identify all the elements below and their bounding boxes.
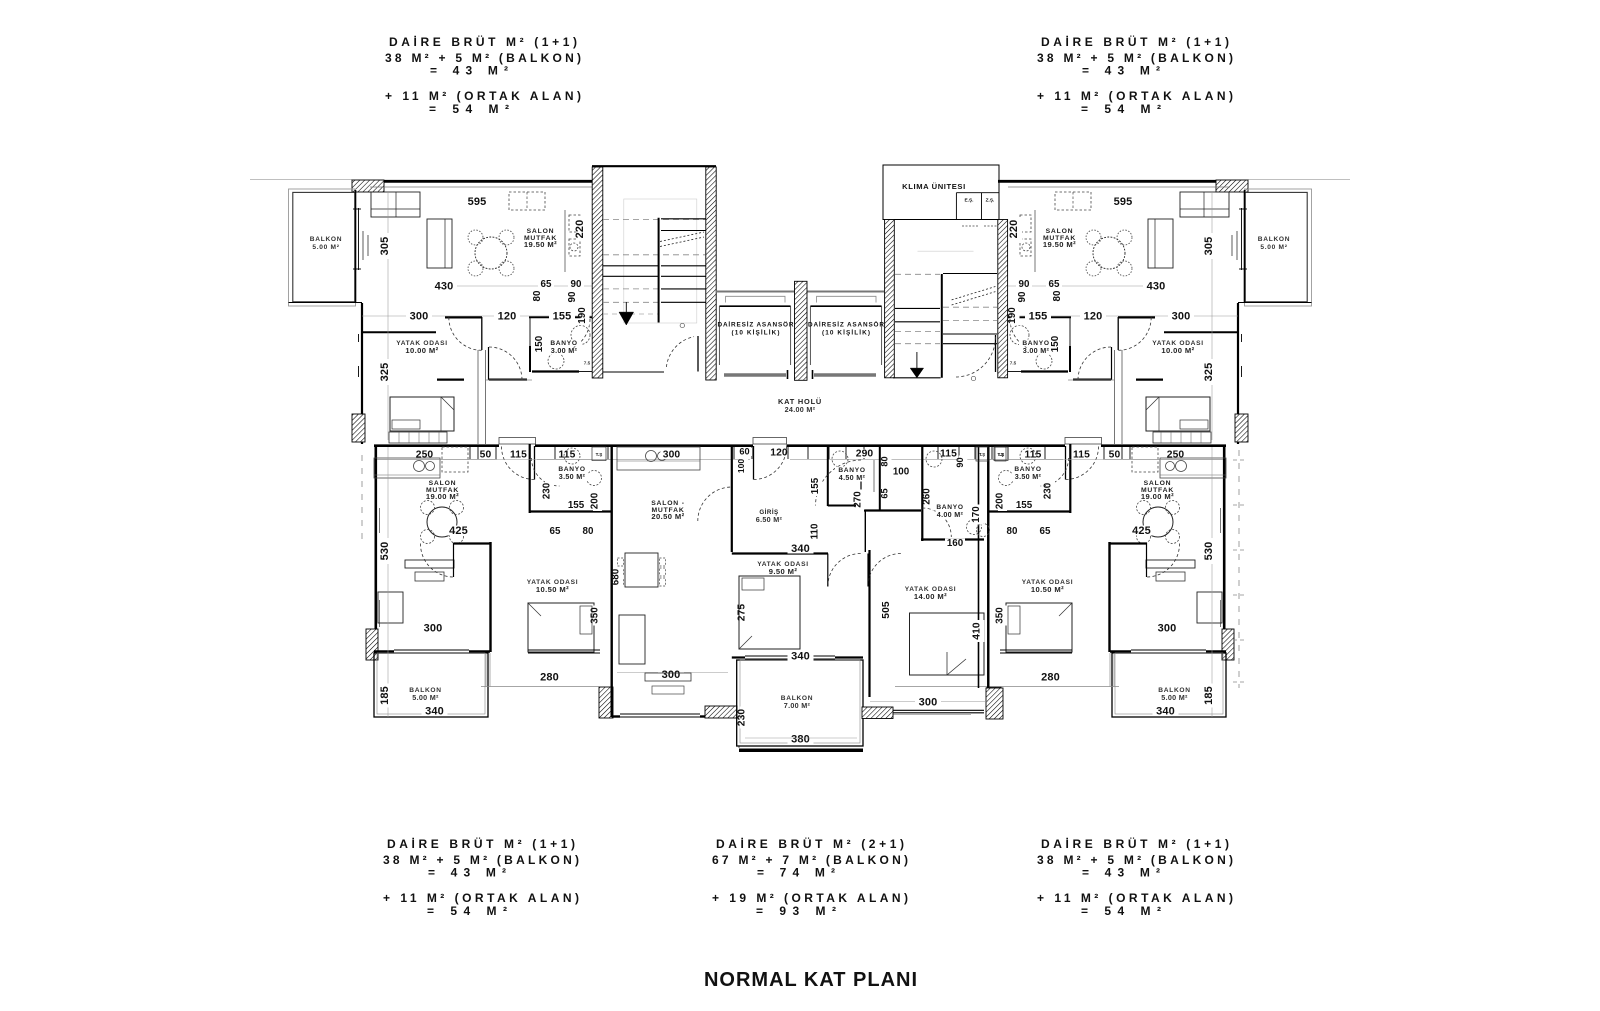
svg-text:110: 110 bbox=[810, 523, 821, 539]
svg-text:190: 190 bbox=[577, 307, 588, 324]
svg-text:425: 425 bbox=[449, 525, 468, 537]
svg-text:280: 280 bbox=[540, 672, 559, 684]
svg-text:505: 505 bbox=[881, 601, 892, 619]
svg-text:9.50 M²: 9.50 M² bbox=[769, 567, 798, 576]
svg-text:90: 90 bbox=[571, 279, 582, 290]
svg-text:290: 290 bbox=[856, 449, 874, 460]
svg-text:300: 300 bbox=[662, 669, 681, 681]
svg-text:270: 270 bbox=[853, 491, 864, 508]
svg-text:200: 200 bbox=[995, 492, 1006, 509]
svg-text:5.00 M²: 5.00 M² bbox=[1260, 244, 1287, 251]
svg-text:T.Ş: T.Ş bbox=[596, 452, 603, 457]
svg-text:80: 80 bbox=[879, 456, 889, 466]
svg-text:300: 300 bbox=[919, 697, 938, 709]
svg-text:4.50 M²: 4.50 M² bbox=[839, 473, 866, 482]
svg-text:115: 115 bbox=[1073, 450, 1090, 461]
svg-text:10.50 M²: 10.50 M² bbox=[536, 585, 569, 594]
svg-text:SALON: SALON bbox=[429, 480, 457, 487]
svg-text:340: 340 bbox=[791, 651, 810, 663]
svg-text:150: 150 bbox=[534, 335, 545, 352]
svg-text:SALON: SALON bbox=[1046, 228, 1074, 235]
svg-text:190: 190 bbox=[1007, 307, 1018, 324]
svg-text:170: 170 bbox=[971, 506, 982, 523]
svg-text:230: 230 bbox=[1043, 482, 1054, 499]
svg-text:595: 595 bbox=[1114, 196, 1133, 208]
svg-text:SALON: SALON bbox=[527, 228, 555, 235]
svg-text:SALON: SALON bbox=[1144, 480, 1172, 487]
svg-text:3.50 M²: 3.50 M² bbox=[1015, 472, 1042, 481]
svg-text:DAİRESİZ ASANSÖR: DAİRESİZ ASANSÖR bbox=[718, 319, 794, 328]
svg-text:185: 185 bbox=[379, 686, 391, 705]
svg-text:595: 595 bbox=[468, 196, 487, 208]
svg-text:185: 185 bbox=[1203, 686, 1215, 705]
svg-text:65: 65 bbox=[879, 488, 889, 498]
svg-text:19.00 M²: 19.00 M² bbox=[426, 492, 459, 501]
svg-text:5.00 M²: 5.00 M² bbox=[412, 693, 439, 702]
svg-text:325: 325 bbox=[1203, 363, 1215, 382]
svg-text:90: 90 bbox=[567, 291, 578, 302]
svg-text:Z.Ş.: Z.Ş. bbox=[986, 198, 995, 204]
svg-text:340: 340 bbox=[425, 706, 444, 718]
svg-text:325: 325 bbox=[379, 363, 391, 382]
svg-text:155: 155 bbox=[553, 311, 572, 323]
svg-text:300: 300 bbox=[1172, 311, 1191, 323]
svg-text:120: 120 bbox=[1084, 311, 1103, 323]
svg-text:305: 305 bbox=[1203, 237, 1215, 256]
svg-text:120: 120 bbox=[498, 311, 517, 323]
svg-text:65: 65 bbox=[1040, 526, 1051, 537]
svg-text:115: 115 bbox=[559, 450, 576, 461]
svg-text:340: 340 bbox=[791, 543, 810, 555]
svg-text:65: 65 bbox=[550, 526, 561, 537]
svg-text:6.50 M²: 6.50 M² bbox=[756, 515, 783, 524]
svg-text:10.00 M²: 10.00 M² bbox=[405, 346, 438, 355]
svg-text:60: 60 bbox=[739, 447, 749, 457]
svg-text:115: 115 bbox=[510, 450, 527, 461]
svg-text:80: 80 bbox=[583, 526, 594, 537]
svg-text:300: 300 bbox=[424, 623, 443, 635]
svg-text:300: 300 bbox=[663, 450, 681, 461]
svg-text:100: 100 bbox=[893, 467, 910, 478]
svg-text:DAİRESİZ ASANSÖR: DAİRESİZ ASANSÖR bbox=[808, 319, 884, 328]
svg-text:80: 80 bbox=[1052, 290, 1063, 301]
svg-text:305: 305 bbox=[379, 237, 391, 256]
svg-text:120: 120 bbox=[770, 448, 788, 459]
svg-text:BALKON: BALKON bbox=[310, 236, 342, 243]
svg-text:3.50 M²: 3.50 M² bbox=[559, 472, 586, 481]
svg-text:155: 155 bbox=[1029, 311, 1048, 323]
svg-text:115: 115 bbox=[1025, 450, 1042, 461]
svg-text:20.50 M²: 20.50 M² bbox=[651, 512, 684, 521]
svg-text:425: 425 bbox=[1132, 525, 1151, 537]
svg-text:250: 250 bbox=[416, 450, 434, 461]
svg-text:50: 50 bbox=[1109, 450, 1121, 461]
svg-text:250: 250 bbox=[1167, 450, 1185, 461]
svg-text:260: 260 bbox=[922, 488, 933, 505]
svg-text:100: 100 bbox=[736, 459, 746, 474]
svg-text:430: 430 bbox=[1147, 281, 1166, 293]
svg-text:220: 220 bbox=[1008, 220, 1020, 239]
svg-text:3.00 M²: 3.00 M² bbox=[1023, 346, 1050, 355]
svg-text:10.00 M²: 10.00 M² bbox=[1161, 346, 1194, 355]
svg-text:410: 410 bbox=[972, 622, 983, 640]
svg-text:90: 90 bbox=[1019, 279, 1030, 290]
svg-text:160: 160 bbox=[947, 538, 964, 549]
svg-text:7.00 M²: 7.00 M² bbox=[784, 701, 811, 710]
svg-text:E.Ş.: E.Ş. bbox=[964, 198, 973, 204]
svg-text:530: 530 bbox=[379, 542, 391, 561]
svg-text:155: 155 bbox=[568, 500, 585, 511]
svg-text:NORMAL KAT PLANI: NORMAL KAT PLANI bbox=[704, 969, 917, 991]
svg-text:380: 380 bbox=[791, 734, 810, 746]
svg-text:SALON -: SALON - bbox=[651, 500, 685, 507]
svg-text:280: 280 bbox=[1041, 672, 1060, 684]
svg-text:24.00 M²: 24.00 M² bbox=[785, 405, 816, 414]
svg-text:7.5: 7.5 bbox=[1010, 361, 1017, 366]
svg-text:T.Ş: T.Ş bbox=[997, 452, 1003, 457]
svg-text:200: 200 bbox=[590, 492, 601, 509]
svg-text:530: 530 bbox=[1203, 542, 1215, 561]
svg-text:300: 300 bbox=[1158, 623, 1177, 635]
svg-text:350: 350 bbox=[590, 607, 601, 624]
svg-text:430: 430 bbox=[435, 281, 454, 293]
svg-text:350: 350 bbox=[995, 607, 1006, 624]
svg-text:275: 275 bbox=[737, 604, 748, 622]
svg-text:680: 680 bbox=[611, 568, 622, 585]
svg-text:(10 KİŞİLİK): (10 KİŞİLİK) bbox=[732, 328, 780, 337]
svg-text:155: 155 bbox=[810, 477, 821, 494]
svg-text:5.00 M²: 5.00 M² bbox=[1161, 693, 1188, 702]
svg-text:155: 155 bbox=[1016, 500, 1033, 511]
svg-text:KLIMA ÜNITESI: KLIMA ÜNITESI bbox=[902, 182, 966, 191]
svg-text:14.00 M²: 14.00 M² bbox=[914, 592, 947, 601]
svg-text:80: 80 bbox=[532, 290, 543, 301]
svg-text:230: 230 bbox=[737, 709, 748, 727]
svg-text:340: 340 bbox=[1156, 706, 1175, 718]
svg-text:150: 150 bbox=[1050, 335, 1061, 352]
svg-text:230: 230 bbox=[542, 482, 553, 499]
svg-text:10.50 M²: 10.50 M² bbox=[1031, 585, 1064, 594]
svg-text:4.00 M²: 4.00 M² bbox=[937, 510, 964, 519]
svg-text:3.00 M²: 3.00 M² bbox=[551, 346, 578, 355]
svg-text:90: 90 bbox=[1017, 291, 1028, 302]
svg-text:19.00 M²: 19.00 M² bbox=[1141, 492, 1174, 501]
svg-text:50: 50 bbox=[480, 450, 492, 461]
svg-text:80: 80 bbox=[1007, 526, 1018, 537]
svg-text:5.00 M²: 5.00 M² bbox=[312, 244, 339, 251]
svg-text:(10 KİŞİLİK): (10 KİŞİLİK) bbox=[822, 328, 870, 337]
svg-text:19.50 M²: 19.50 M² bbox=[524, 240, 557, 249]
svg-text:7.5: 7.5 bbox=[584, 361, 591, 366]
svg-text:BALKON: BALKON bbox=[1258, 236, 1290, 243]
svg-text:19.50 M²: 19.50 M² bbox=[1043, 240, 1076, 249]
svg-text:300: 300 bbox=[410, 311, 429, 323]
svg-text:220: 220 bbox=[574, 220, 586, 239]
svg-text:90: 90 bbox=[955, 457, 965, 467]
svg-text:T.Ş: T.Ş bbox=[979, 452, 985, 457]
